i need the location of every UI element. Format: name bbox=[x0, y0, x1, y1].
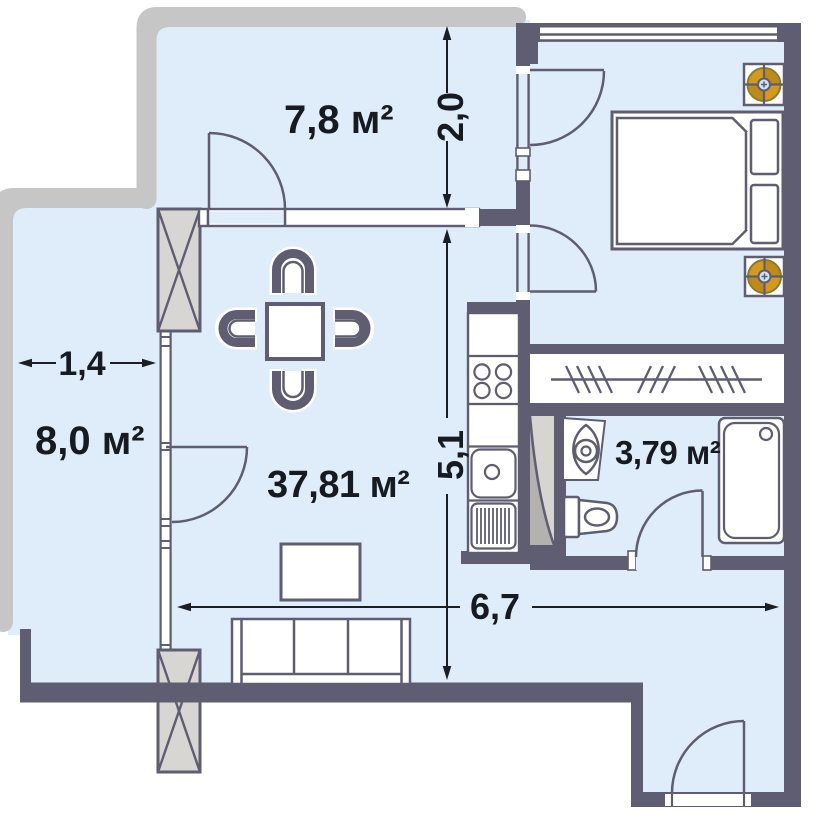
svg-text:2,0: 2,0 bbox=[430, 92, 471, 142]
svg-text:3,79 м²: 3,79 м² bbox=[615, 434, 721, 471]
svg-text:8,0 м²: 8,0 м² bbox=[35, 419, 145, 463]
svg-text:7,8 м²: 7,8 м² bbox=[284, 98, 394, 142]
svg-text:1,4: 1,4 bbox=[58, 345, 105, 383]
svg-text:37,81 м²: 37,81 м² bbox=[267, 464, 409, 506]
svg-text:6,7: 6,7 bbox=[470, 586, 520, 627]
svg-text:5,1: 5,1 bbox=[430, 430, 471, 480]
